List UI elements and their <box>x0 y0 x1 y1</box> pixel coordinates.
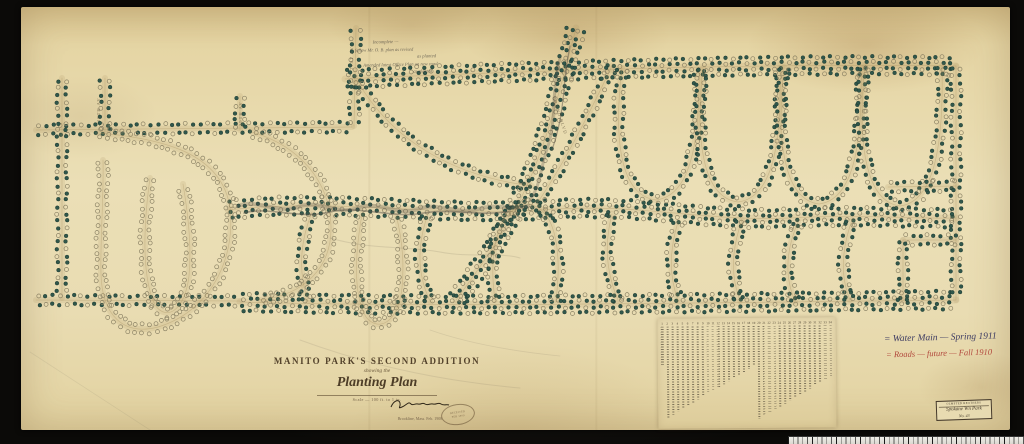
legend-fineprint <box>707 326 710 393</box>
legend-column: 9 <box>701 321 705 396</box>
legend-number: 33 <box>823 320 826 324</box>
legend-fineprint <box>676 327 679 412</box>
map-subtitle: Planting Plan <box>262 375 492 391</box>
legend-number: 12 <box>716 321 719 325</box>
legend-column: 7 <box>691 321 695 402</box>
legend-column: 14 <box>727 321 731 381</box>
legend-fineprint <box>788 326 791 401</box>
legend-number: 17 <box>742 321 745 325</box>
pencil-note-line: as planted <box>417 52 437 60</box>
legend-fineprint <box>661 327 663 365</box>
legend-fineprint <box>687 327 690 406</box>
legend-number: 26 <box>788 321 791 325</box>
legend-fineprint <box>783 326 786 404</box>
legend-number: 1 <box>661 322 663 326</box>
file-label: OLMSTED BROTHERS Spokane Wn Park No. 43 <box>936 399 993 420</box>
legend-fineprint <box>768 326 771 413</box>
legend-column: 6 <box>686 322 690 406</box>
street-label: 18TH AV <box>96 97 101 122</box>
legend-fineprint <box>814 325 817 385</box>
legend-column: 18 <box>747 321 750 369</box>
legend-number: 28 <box>798 321 801 325</box>
legend-column: 32 <box>818 320 822 382</box>
legend-number: 18 <box>747 321 750 325</box>
legend-fineprint <box>727 326 730 381</box>
legend-column: 31 <box>813 320 817 385</box>
legend-fineprint <box>758 326 761 419</box>
legend-number: 20 <box>757 321 760 325</box>
legend-fineprint <box>793 326 796 398</box>
legend-number: 31 <box>813 320 816 324</box>
legend-number: 7 <box>692 321 694 325</box>
legend-fineprint <box>804 325 807 391</box>
legend-number: 29 <box>803 320 806 324</box>
legend-number: 24 <box>778 321 781 325</box>
map-paper-sheet <box>21 7 1010 430</box>
legend-fineprint <box>763 326 766 416</box>
legend-fineprint <box>671 327 674 415</box>
legend-fineprint <box>697 326 700 399</box>
legend-fineprint <box>732 326 735 378</box>
legend-number: 3 <box>671 322 673 326</box>
legend-fineprint <box>722 326 725 384</box>
legend-column: 3 <box>671 322 675 415</box>
stamp-date: FEB 1909 <box>452 414 465 419</box>
legend-number: 4 <box>677 322 679 326</box>
legend-fineprint <box>666 327 669 418</box>
legend-column: 23 <box>773 321 777 410</box>
title-block: MANITO PARK'S SECOND ADDITION showing th… <box>262 356 492 402</box>
legend-fineprint <box>737 326 740 375</box>
legend-column: 1 <box>661 322 664 365</box>
legend-number: 11 <box>711 321 714 325</box>
legend-number: 10 <box>706 321 709 325</box>
legend-fineprint <box>824 325 827 379</box>
map-subtitle-prefix: showing the <box>262 368 492 374</box>
legend-fineprint <box>753 326 755 366</box>
legend-number: 19 <box>752 321 755 325</box>
legend-column: 34 <box>829 320 832 376</box>
legend-column: 30 <box>808 320 812 388</box>
legend-column: 17 <box>742 321 745 372</box>
legend-number: 21 <box>762 321 765 325</box>
legend-number: 30 <box>808 320 811 324</box>
legend-column: 20 <box>757 321 761 419</box>
legend-fineprint <box>702 326 705 396</box>
street-label: 21ST AV <box>349 46 354 70</box>
legend-fineprint <box>712 326 715 390</box>
legend-column: 16 <box>737 321 740 375</box>
legend-fineprint <box>809 325 812 388</box>
legend-number: 14 <box>727 321 730 325</box>
legend-fineprint <box>829 325 832 376</box>
legend-number: 22 <box>767 321 770 325</box>
legend-number: 13 <box>722 321 725 325</box>
legend-column: 26 <box>788 321 792 401</box>
scale-note: Scale — 100 ft. to 1 in. <box>262 397 492 402</box>
legend-number: 32 <box>818 320 821 324</box>
legend-column: 29 <box>803 320 807 391</box>
legend-number: 8 <box>697 321 699 325</box>
legend-fineprint <box>681 327 684 409</box>
legend-fineprint <box>773 326 776 410</box>
legend-column: 21 <box>762 321 766 416</box>
pencil-annotation-block: Incomplete — follow Mr. O. B. plan as re… <box>355 37 438 76</box>
legend-columns: 1234567891011121314151617181920212223242… <box>661 320 835 429</box>
legend-column: 22 <box>768 321 772 413</box>
legend-number: 9 <box>702 321 704 325</box>
legend-number: 34 <box>829 320 832 324</box>
legend-column: 12 <box>717 321 721 387</box>
legend-column: 33 <box>824 320 828 379</box>
legend-number: 27 <box>793 321 796 325</box>
legend-column: 10 <box>706 321 710 393</box>
legend-number: 5 <box>682 322 684 326</box>
legend-column: 27 <box>793 321 797 398</box>
legend-number: 25 <box>783 321 786 325</box>
legend-fineprint <box>717 326 720 387</box>
scale-ruler <box>788 436 1024 444</box>
plant-legend-strip: 1234567891011121314151617181920212223242… <box>658 317 837 429</box>
legend-number: 16 <box>737 321 740 325</box>
legend-column: 13 <box>722 321 726 384</box>
legend-column: 8 <box>696 321 700 399</box>
street-label: 19TH AV <box>238 101 243 126</box>
legend-number: 6 <box>687 322 689 326</box>
title-rule <box>317 395 437 396</box>
legend-fineprint <box>778 326 781 407</box>
legend-column: 4 <box>676 322 680 412</box>
legend-number: 15 <box>732 321 735 325</box>
legend-column: 28 <box>798 321 802 395</box>
legend-number: 23 <box>773 321 776 325</box>
pencil-note-line: as planted <box>413 67 437 75</box>
legend-column: 19 <box>752 321 755 366</box>
map-title: MANITO PARK'S SECOND ADDITION <box>262 356 492 366</box>
legend-column: 24 <box>778 321 782 407</box>
legend-fineprint <box>743 326 745 372</box>
legend-column: 2 <box>666 322 670 418</box>
legend-column: 5 <box>681 322 685 409</box>
legend-fineprint <box>692 326 695 402</box>
legend-fineprint <box>819 325 822 382</box>
legend-fineprint <box>799 326 802 395</box>
legend-fineprint <box>748 326 750 369</box>
legend-column: 25 <box>783 321 787 404</box>
scanned-map-document: Incomplete — follow Mr. O. B. plan as re… <box>0 0 1024 444</box>
legend-column: 15 <box>732 321 735 378</box>
legend-column: 11 <box>711 321 715 390</box>
legend-number: 2 <box>666 322 668 326</box>
